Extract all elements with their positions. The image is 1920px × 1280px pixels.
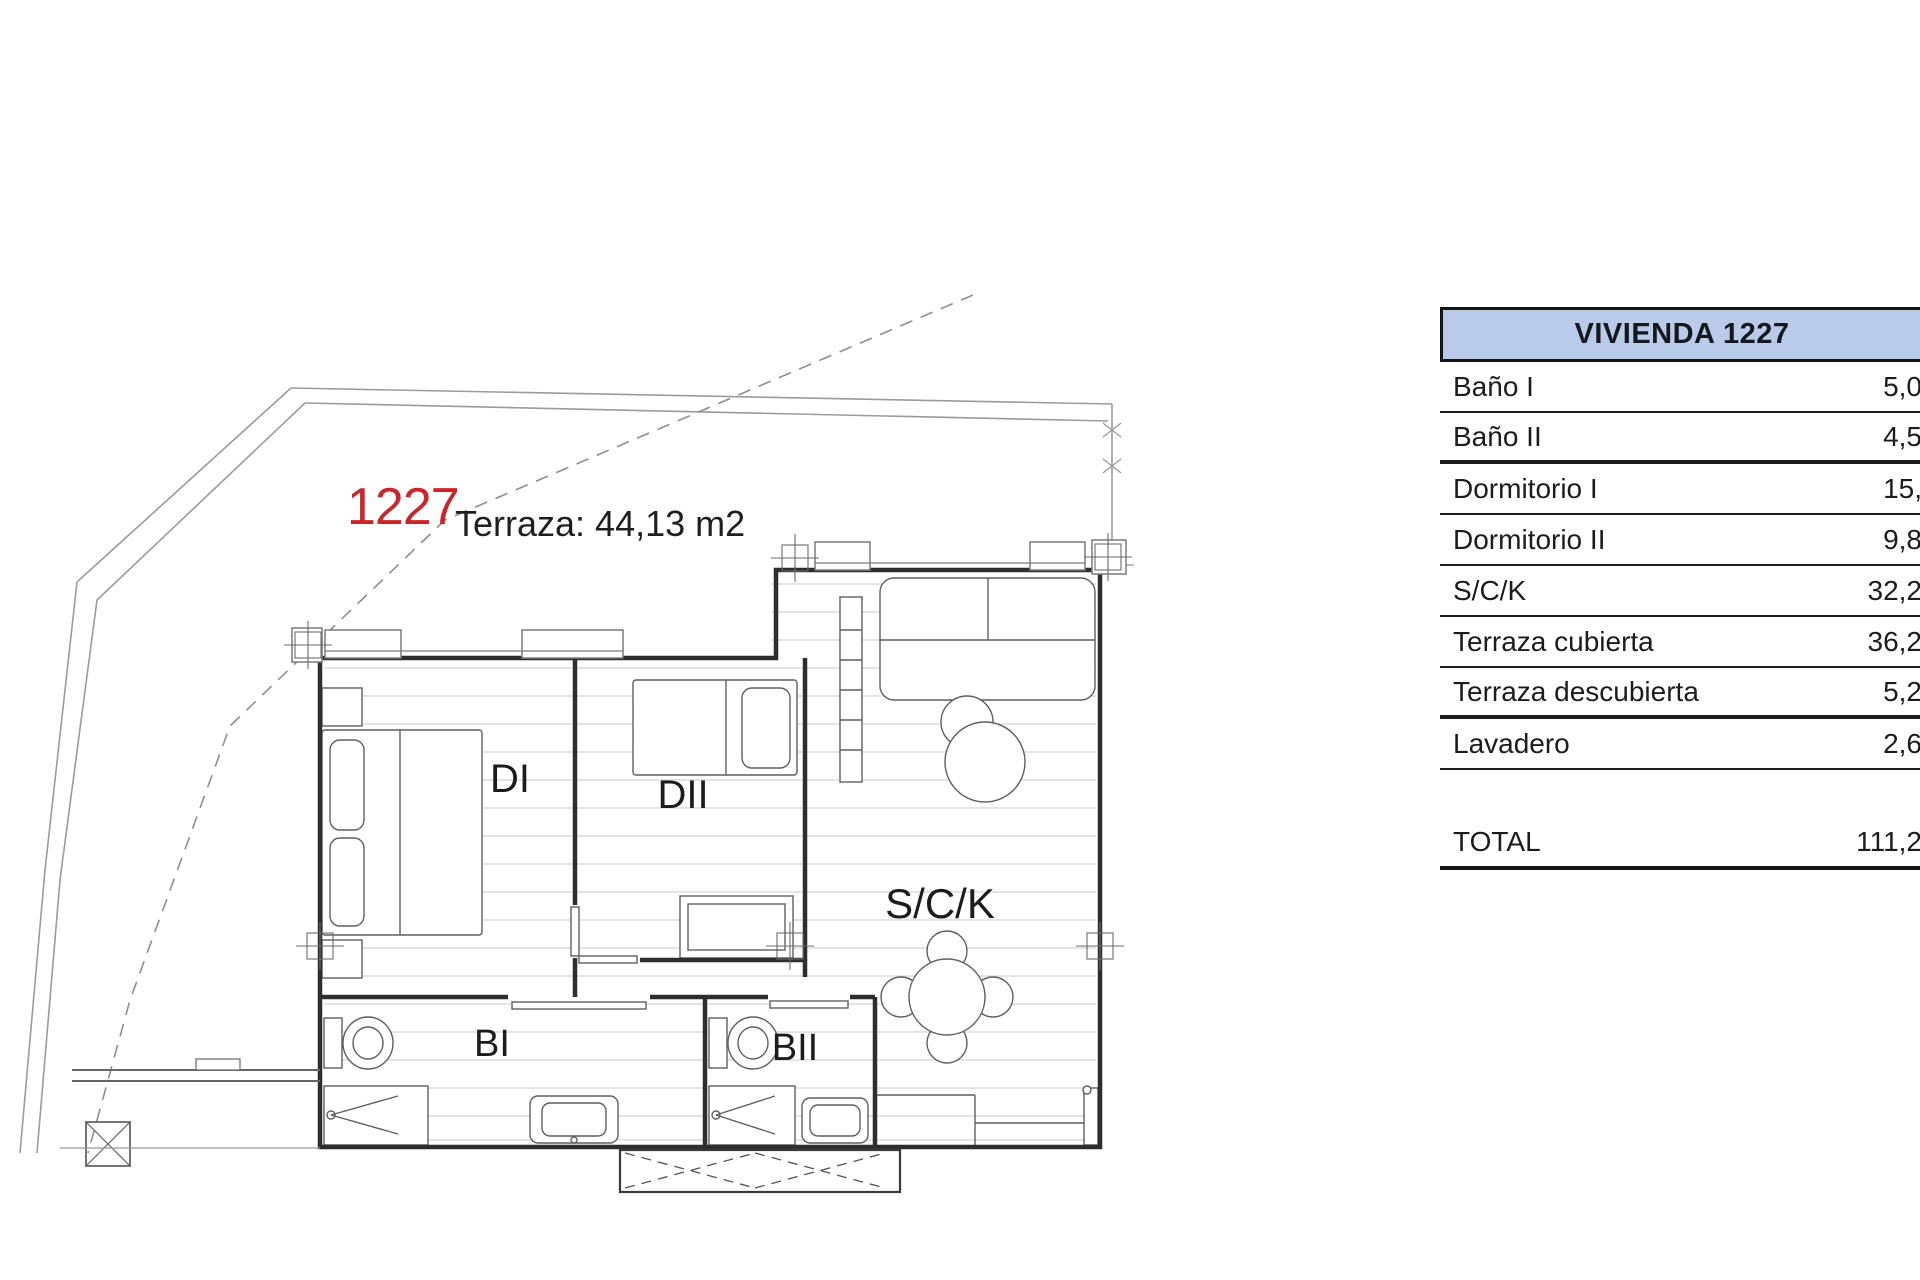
row-value: 32,2 [1868, 575, 1920, 607]
room-label-dii: DII [657, 773, 708, 817]
kitchen-appliance [1084, 1088, 1098, 1145]
floor-plan-sheet: 1227 Terraza: 44,13 m2 DI DII S/C/K BI B… [0, 0, 1920, 1280]
total-value: 111,2 [1856, 826, 1920, 858]
bi-toilet-tank [324, 1018, 342, 1068]
table-row: Dormitorio II 9,8 [1440, 515, 1920, 566]
dining-table [909, 959, 985, 1035]
row-label: Terraza cubierta [1453, 626, 1654, 658]
row-label: Terraza descubierta [1453, 676, 1699, 708]
row-value: 2,6 [1883, 728, 1920, 760]
row-value: 9,8 [1883, 524, 1920, 556]
room-label-sck: S/C/K [885, 880, 995, 927]
room-label-bi: BI [474, 1023, 510, 1065]
area-table: VIVIENDA 1227 Baño I 5,0 Baño II 4,5 Dor… [1440, 307, 1920, 870]
row-value: 4,5 [1883, 421, 1920, 453]
area-table-header: VIVIENDA 1227 [1440, 307, 1920, 362]
table-row: Lavadero 2,6 [1440, 719, 1920, 770]
total-label: TOTAL [1453, 826, 1541, 858]
room-label-di: DI [490, 757, 530, 801]
table-row: Baño I 5,0 [1440, 362, 1920, 413]
bii-shower [709, 1086, 795, 1145]
di-nightstand [322, 688, 362, 726]
room-label-bii: BII [772, 1027, 818, 1069]
dii-desk-inner [688, 904, 785, 950]
table-row: Terraza descubierta 5,2 [1440, 668, 1920, 719]
row-label: Baño I [1453, 371, 1534, 403]
di-pillow [330, 838, 364, 926]
dii-pillow [742, 688, 790, 768]
row-label: Lavadero [1453, 728, 1570, 760]
furniture [322, 578, 1098, 1147]
table-row: Dormitorio I 15, [1440, 464, 1920, 515]
row-label: Dormitorio II [1453, 524, 1605, 556]
row-value: 5,0 [1883, 371, 1920, 403]
round-table [945, 722, 1025, 802]
row-label: S/C/K [1453, 575, 1526, 607]
table-row: S/C/K 32,2 [1440, 566, 1920, 617]
row-value: 15, [1883, 473, 1920, 505]
row-value: 36,2 [1868, 626, 1920, 658]
row-label: Dormitorio I [1453, 473, 1598, 505]
di-pillow [330, 740, 364, 830]
laundry-hatch-box [620, 1150, 900, 1192]
row-value: 5,2 [1883, 676, 1920, 708]
table-row: Baño II 4,5 [1440, 413, 1920, 464]
table-row: Terraza cubierta 36,2 [1440, 617, 1920, 668]
bi-shower [324, 1086, 428, 1145]
table-total-row: TOTAL 111,2 [1440, 817, 1920, 870]
row-label: Baño II [1453, 421, 1542, 453]
unit-number-label: 1227 [347, 478, 459, 536]
terrace-area-label: Terraza: 44,13 m2 [455, 503, 745, 544]
bii-toilet-tank [709, 1018, 727, 1068]
